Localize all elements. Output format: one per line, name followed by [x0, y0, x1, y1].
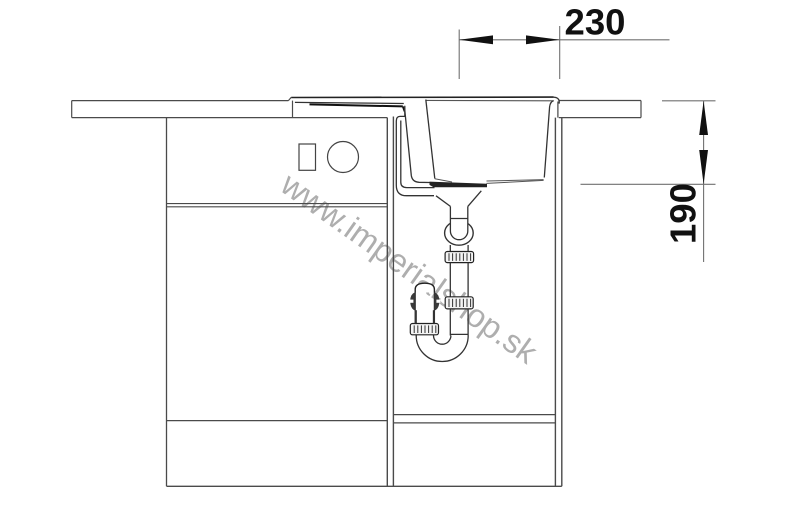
- svg-text:230: 230: [565, 2, 626, 43]
- svg-text:190: 190: [663, 183, 704, 244]
